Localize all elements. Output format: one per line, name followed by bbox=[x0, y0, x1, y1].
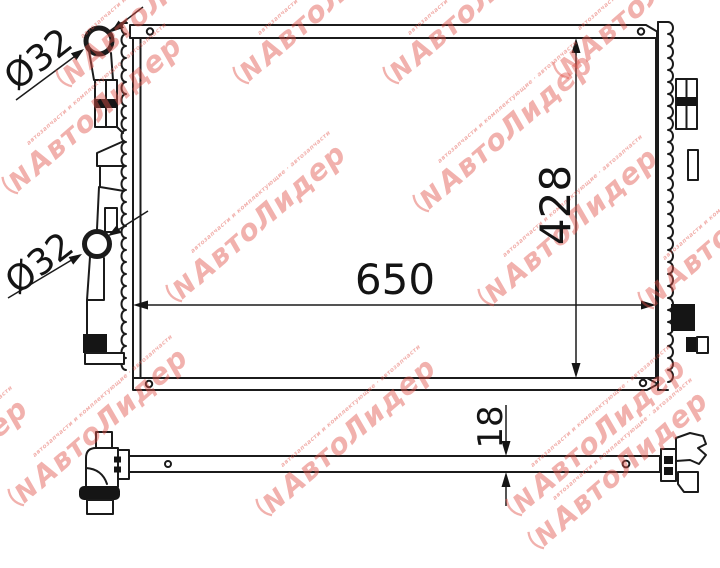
left-upper-mount-bracket bbox=[95, 80, 117, 127]
right-lower-mount-black bbox=[671, 304, 695, 331]
left-tank bbox=[83, 22, 127, 370]
right-upper-mount-bracket bbox=[676, 79, 697, 129]
pipe-outlet bbox=[87, 500, 113, 514]
dim-width-label: 650 bbox=[340, 259, 450, 301]
side-view-elbow-pipe bbox=[79, 432, 129, 514]
inlet-pipe-top bbox=[86, 28, 112, 54]
bottom-view bbox=[79, 405, 706, 514]
right-side-tab bbox=[688, 150, 698, 180]
front-view bbox=[8, 7, 708, 390]
left-tank-corrugated-edge bbox=[122, 22, 127, 370]
inlet-pipe-bottom bbox=[85, 232, 110, 257]
right-tank bbox=[658, 22, 708, 390]
dim-thickness-label: 18 bbox=[474, 397, 508, 457]
pipe-clamp-ring bbox=[79, 486, 120, 500]
side-view-core-bar bbox=[128, 456, 660, 472]
bottom-header-bar bbox=[133, 378, 658, 390]
top-header-bar bbox=[130, 25, 657, 38]
side-view-right-bracket bbox=[661, 433, 706, 492]
left-lower-mount-bracket bbox=[83, 334, 124, 364]
radiator-technical-drawing-page: { "drawing": { "type": "radiator technic… bbox=[0, 0, 720, 525]
dim-height-label: 428 bbox=[535, 145, 577, 265]
right-lower-tab bbox=[697, 337, 708, 353]
right-lower-tab-black bbox=[686, 337, 697, 352]
